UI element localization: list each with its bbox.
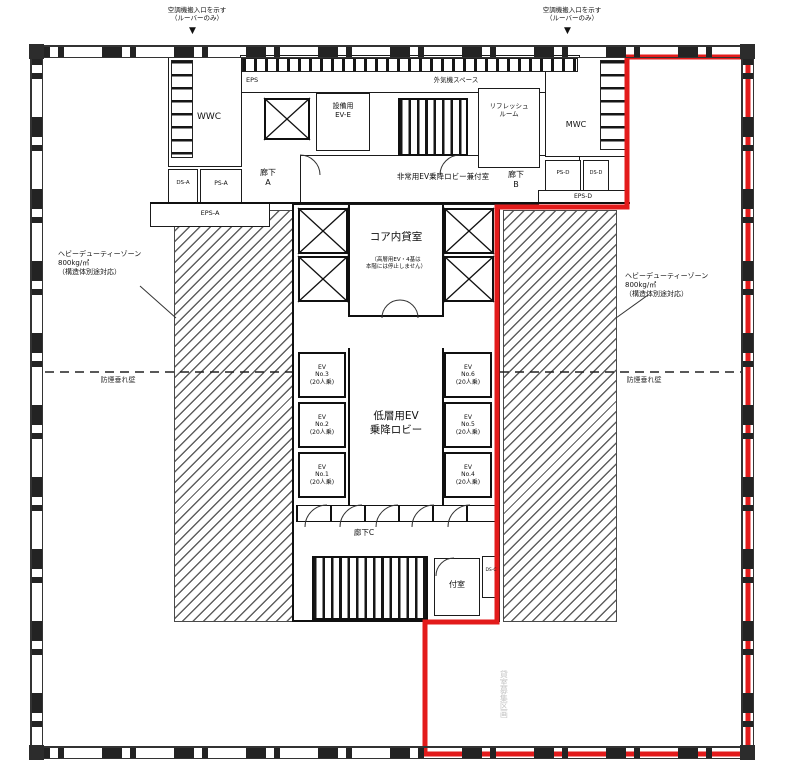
wwc-label: WWC (186, 112, 232, 124)
ds-a-label: DS-A (168, 180, 198, 187)
equip-ev-label: 設備用 EV-E (318, 102, 368, 120)
smoke-wall-label-right: 防煙垂れ壁 (614, 376, 674, 385)
eps-label: EPS (246, 76, 276, 84)
ps-d-label: PS-D (545, 170, 581, 177)
corridor-a-label: 廊下 A (250, 168, 286, 189)
smoke-wall-label-left: 防煙垂れ壁 (88, 376, 148, 385)
outdoor-air-label: 外気機スペース (408, 76, 504, 84)
corner-column-bl (29, 745, 44, 760)
supply-inlet-note-left: 空調機搬入口を示す （ルーバーのみ） (150, 6, 244, 23)
supply-inlet-note-right: 空調機搬入口を示す （ルーバーのみ） (525, 6, 619, 23)
corner-column-tl (29, 44, 44, 59)
refresh-room-label: リフレッシュ ルーム (481, 102, 537, 119)
corner-column-br (740, 745, 755, 760)
supply-inlet-arrow-left: ▼ (189, 26, 196, 38)
ds-c-label: DS-C (482, 568, 500, 574)
low-ev-lobby-label: 低層用EV 乗降ロビー (351, 410, 441, 437)
eps-d-label: EPS-D (538, 193, 628, 201)
perimeter-wall-left (30, 45, 43, 759)
mwc-label: MWC (556, 120, 596, 130)
heavy-duty-note-left: ヘビーデューティーゾーン 800kg/㎡ （構造体別途対応） (58, 250, 170, 277)
supply-inlet-arrow-right: ▼ (564, 26, 571, 38)
perimeter-wall-bottom (30, 746, 748, 759)
red-zone-outline (425, 57, 748, 754)
ds-d-label: DS-D (583, 170, 609, 177)
corridor-c-label: 廊下C (336, 528, 392, 538)
perimeter-wall-right (741, 45, 754, 759)
vertical-faint-note: 貸室募集区画 (498, 652, 508, 736)
anteroom-label: 付室 (438, 580, 476, 590)
shaft-x-marks (264, 98, 494, 302)
corner-column-tr (740, 44, 755, 59)
emergency-ev-lobby-label: 非常用EV乗降ロビー兼付室 (320, 172, 566, 182)
heavy-duty-note-right: ヘビーデューティーゾーン 800kg/㎡ （構造体別途対応） (625, 272, 747, 299)
core-rental-note: （高層用EV・4基は 本階には停止しません） (340, 257, 452, 271)
perimeter-wall-top (30, 45, 748, 58)
floor-plan-canvas: EV No.3 (20人乗) EV No.2 (20人乗) EV No.1 (2… (0, 0, 800, 775)
plan-line-overlay (0, 0, 800, 775)
eps-a-label: EPS-A (150, 209, 270, 217)
leader-lines (140, 286, 648, 318)
core-rental-label: コア内貸室 (346, 231, 446, 245)
ps-a-label: PS-A (200, 180, 242, 188)
door-arcs (300, 155, 470, 576)
